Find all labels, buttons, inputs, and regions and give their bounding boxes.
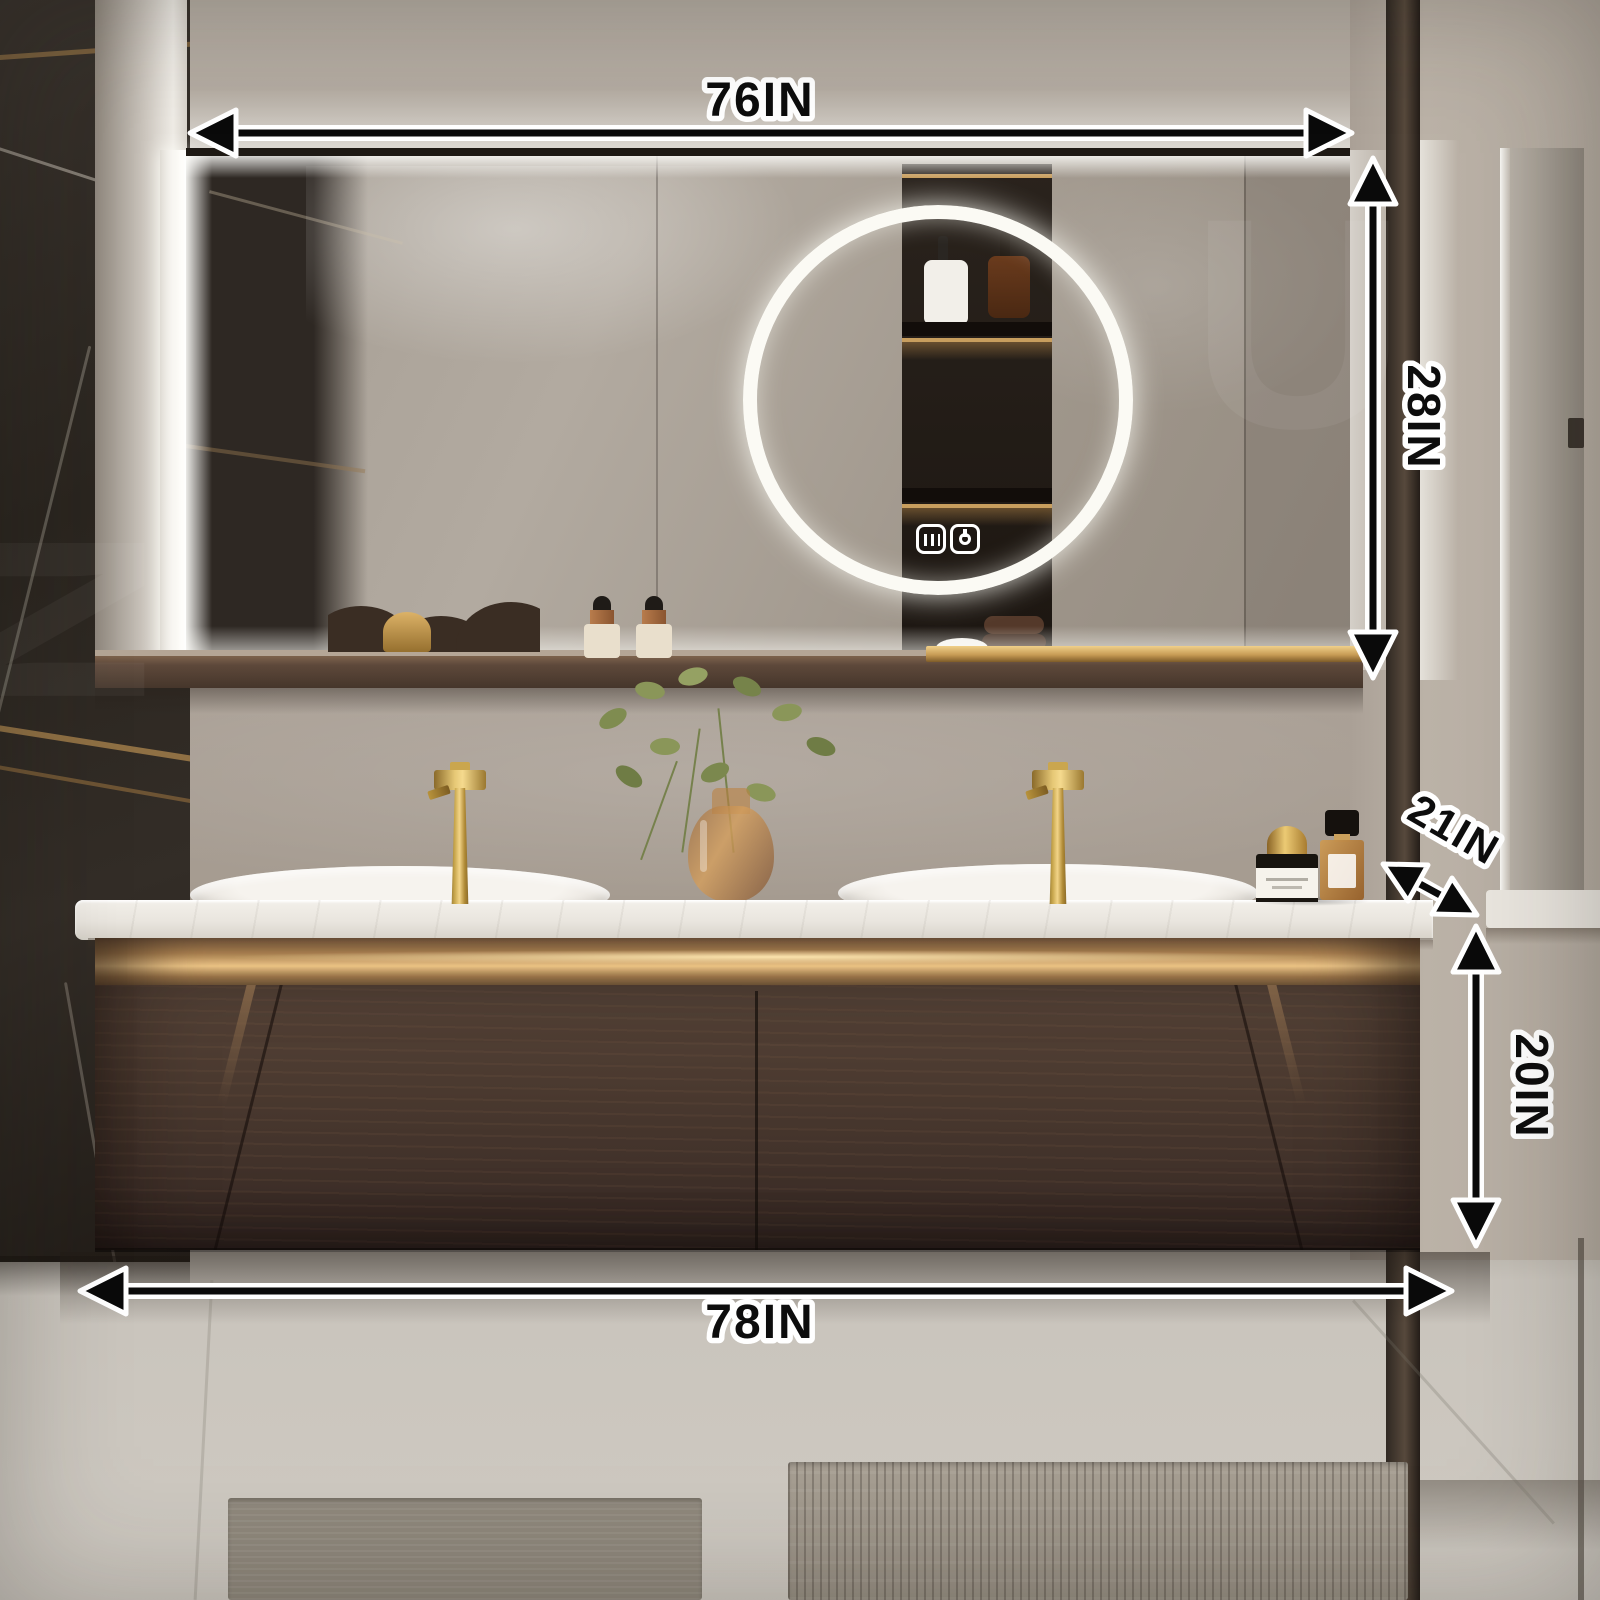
product-dimension-photo: U N 76IN 28IN 21IN <box>0 0 1600 1600</box>
arrowhead-bottom <box>1350 632 1396 678</box>
arrowhead-right <box>1306 110 1352 156</box>
dimension-annotations: 76IN 28IN 21IN 20IN <box>0 0 1600 1600</box>
label-78in: 78IN <box>705 1296 814 1349</box>
label-28in: 28IN <box>1398 364 1450 469</box>
arrowhead-left <box>80 1268 126 1314</box>
dimension-76in: 76IN <box>190 74 1352 156</box>
arrowhead-bottom <box>1453 1200 1499 1246</box>
arrowhead-top <box>1350 158 1396 204</box>
dimension-78in: 78IN <box>80 1268 1452 1349</box>
dimension-21in: 21IN <box>1383 785 1508 915</box>
dimension-20in: 20IN <box>1453 926 1558 1246</box>
dimension-28in: 28IN <box>1350 158 1450 678</box>
arrowhead-right <box>1406 1268 1452 1314</box>
arrowhead-top <box>1453 926 1499 972</box>
label-20in: 20IN <box>1506 1033 1558 1138</box>
arrowhead-left <box>190 110 236 156</box>
label-76in: 76IN <box>705 74 814 127</box>
label-21in: 21IN <box>1401 785 1508 874</box>
